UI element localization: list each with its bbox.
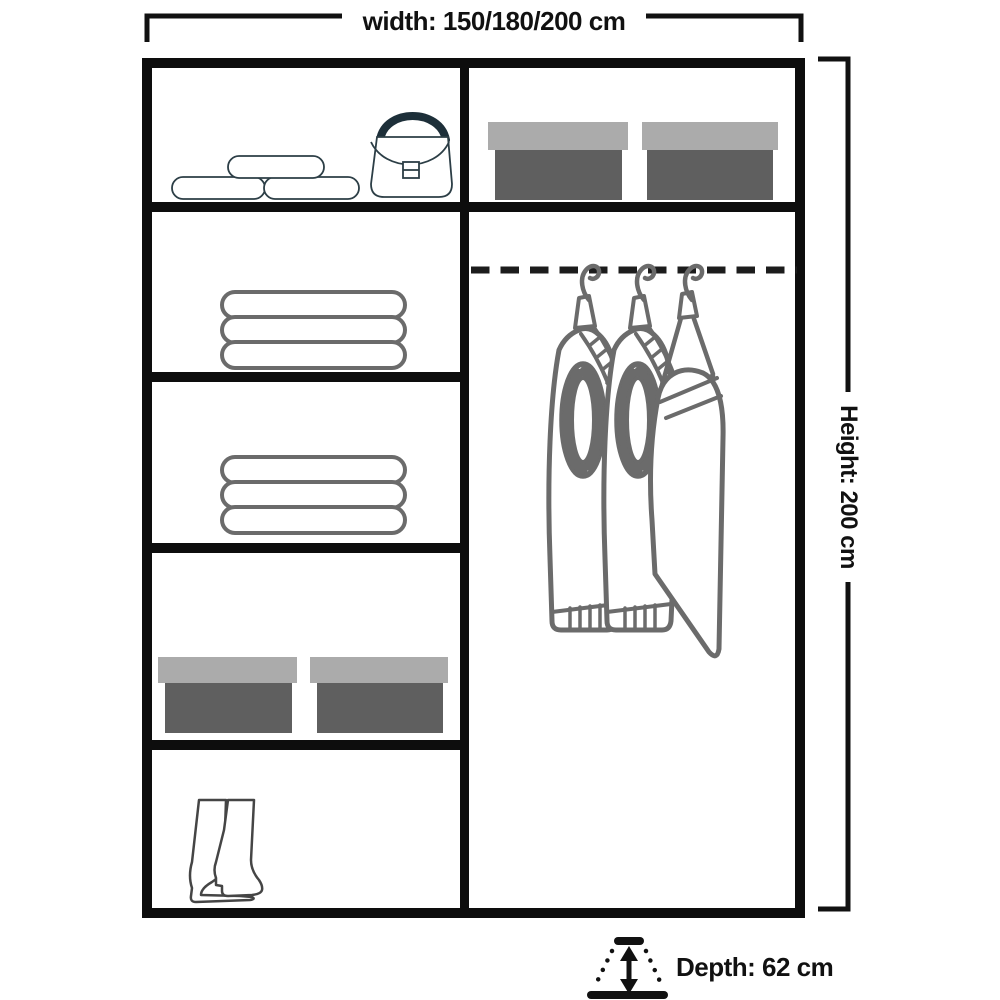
depth-arrow-icon (587, 937, 668, 999)
shoe-box-icon (642, 122, 778, 200)
wardrobe-dimension-diagram: width: 150/180/200 cm Height: 200 cm (0, 0, 1000, 1000)
shoe-box-icon (488, 122, 628, 200)
width-label: width: 150/180/200 cm (362, 6, 626, 36)
shoe-box-body (647, 150, 773, 200)
towel-icon (222, 507, 405, 533)
towel-icon (222, 482, 405, 508)
depth-bottom-bar (587, 991, 668, 999)
depth-side-dots (594, 951, 612, 988)
pillow-icon (172, 177, 265, 199)
shoe-box-icon (158, 657, 297, 733)
depth-top-bar (614, 937, 644, 945)
pillow-icon (264, 177, 359, 199)
shoe-box-lid (642, 122, 778, 150)
towel-stack-icon (222, 457, 405, 533)
depth-label: Depth: 62 cm (676, 952, 833, 982)
depth-arrow-head-up (620, 946, 638, 961)
depth-side-dots (646, 951, 663, 988)
boots-icon (190, 800, 262, 902)
handbag-icon (371, 116, 452, 197)
wardrobe-diagram-canvas: width: 150/180/200 cm Height: 200 cm (0, 0, 1000, 1000)
shoe-box-body (495, 150, 622, 200)
towel-icon (222, 342, 405, 368)
shoe-box-lid (310, 657, 448, 683)
towel-icon (222, 317, 405, 343)
shoe-box-icon (310, 657, 448, 733)
towel-icon (222, 457, 405, 483)
pillows-icon (172, 156, 359, 199)
shoe-box-body (165, 683, 292, 733)
towel-stack-icon (222, 292, 405, 368)
shoe-box-lid (158, 657, 297, 683)
towel-icon (222, 292, 405, 318)
shoe-box-lid (488, 122, 628, 150)
pillow-icon (228, 156, 324, 178)
shoe-box-body (317, 683, 443, 733)
height-label: Height: 200 cm (835, 405, 862, 569)
